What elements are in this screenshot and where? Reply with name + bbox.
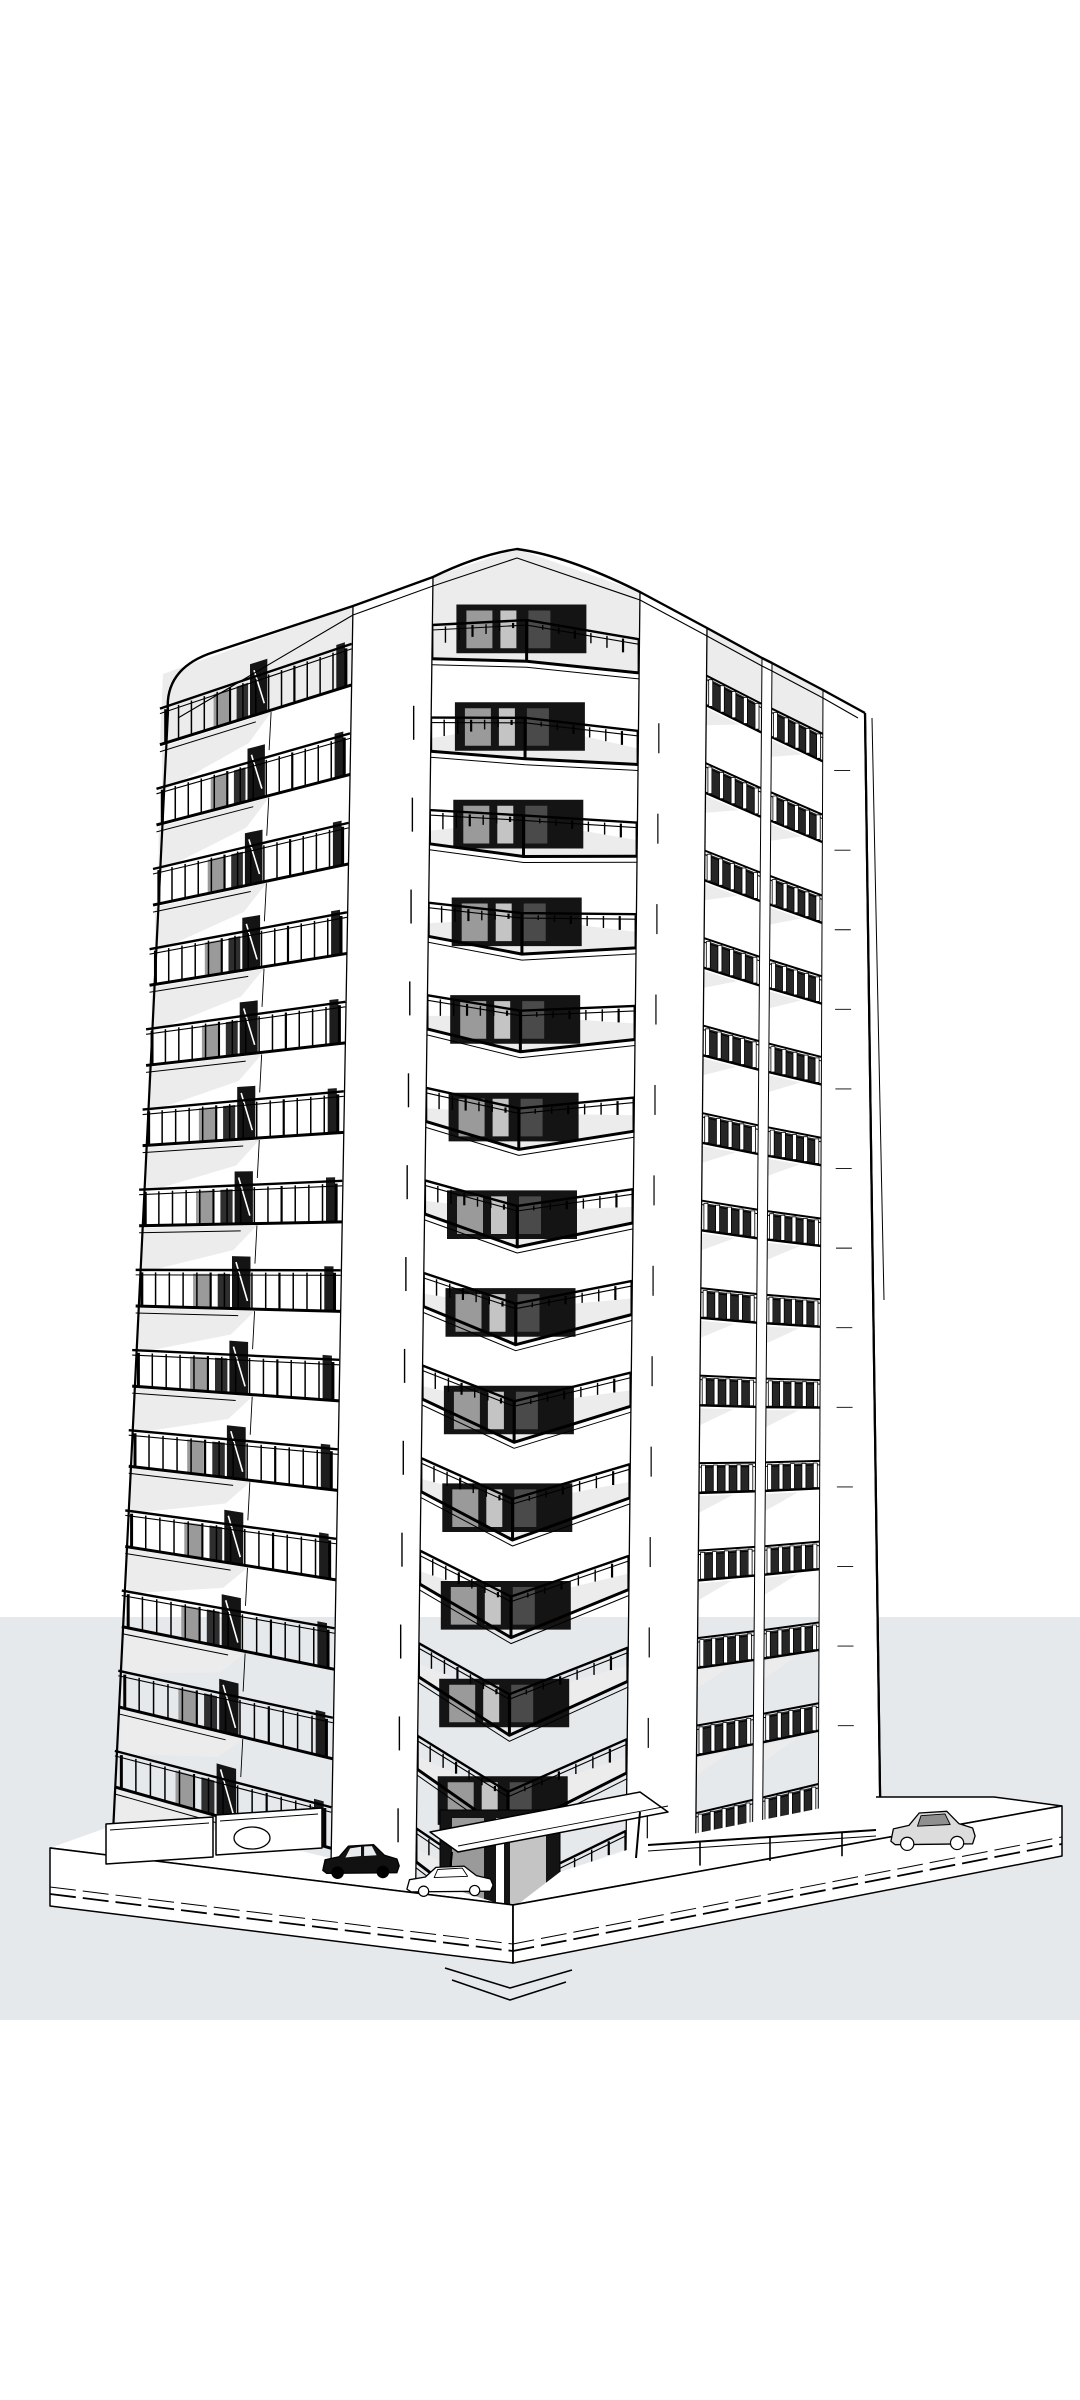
building-3d-line-render [0,0,1080,2400]
shrub [234,1827,270,1849]
garden-wall-left-1 [106,1817,213,1864]
render-viewport [0,0,1080,2400]
garden-wall-left-2 [216,1808,322,1855]
corner-pillar-right [625,592,707,1940]
